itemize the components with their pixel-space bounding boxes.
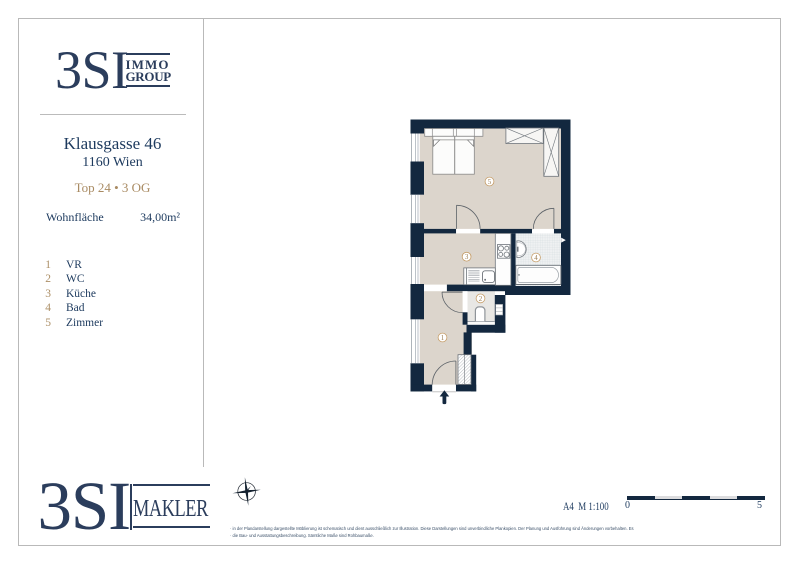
svg-text:3: 3 — [465, 253, 469, 261]
svg-text:1: 1 — [441, 334, 445, 342]
svg-text:4: 4 — [534, 254, 538, 262]
svg-text:2: 2 — [479, 295, 483, 303]
svg-text:5: 5 — [488, 178, 492, 186]
